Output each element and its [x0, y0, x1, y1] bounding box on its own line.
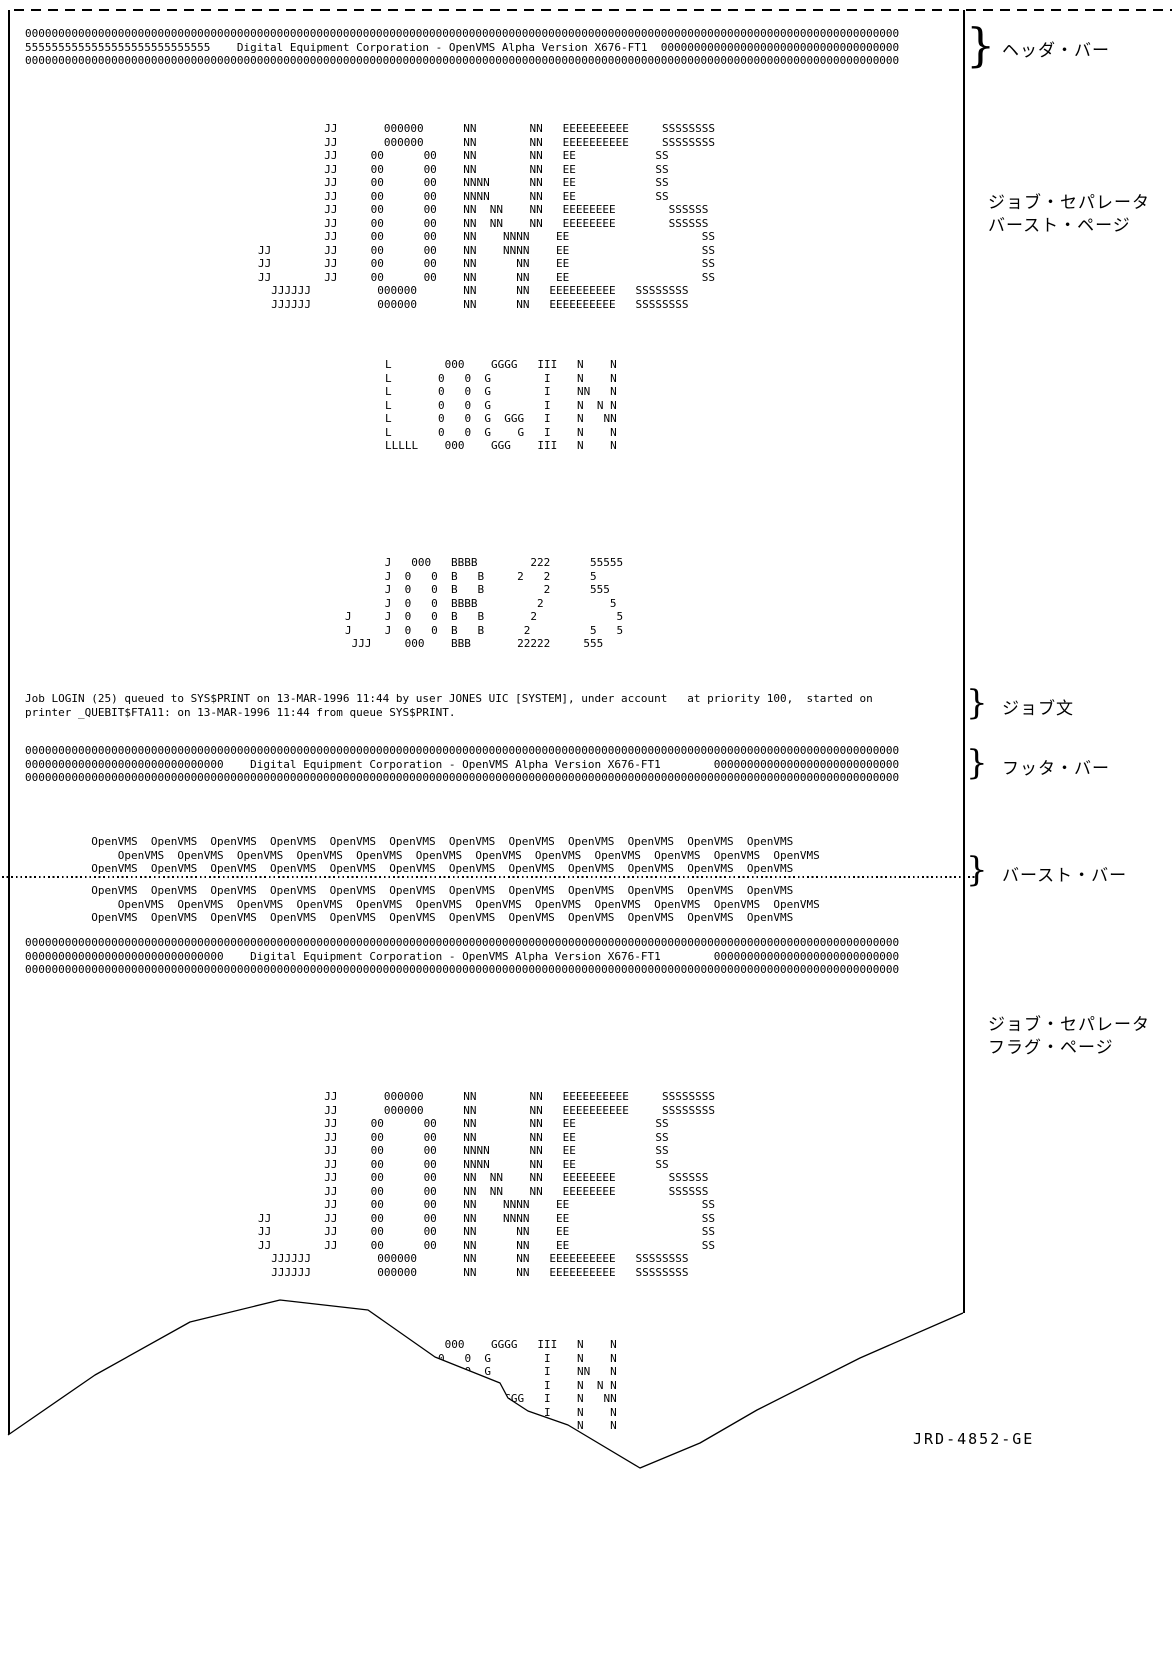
header-bar-brace-icon: }	[966, 22, 995, 68]
job-statement-brace-icon: }	[966, 686, 988, 720]
annotation-footer-bar: フッタ・バー	[1002, 754, 1110, 779]
openvms-rows-below-burst: OpenVMS OpenVMS OpenVMS OpenVMS OpenVMS …	[25, 884, 820, 925]
annotation-line: フラグ・ページ	[988, 1037, 1150, 1060]
header-bar-text-flag-page: 0000000000000000000000000000000000000000…	[25, 936, 899, 977]
figure-canvas: 0000000000000000000000000000000000000000…	[0, 0, 1175, 1657]
annotation-job-separator-burst-page: ジョブ・セパレータ バースト・ページ	[988, 192, 1150, 238]
burst-bar-brace-icon: }	[966, 853, 988, 887]
job-number-banner: J 000 BBBB 222 55555 J 0 0 B B 2 2 5 J 0…	[345, 556, 623, 651]
annotation-line: ジョブ・セパレータ	[988, 1014, 1150, 1037]
header-bar-text: 0000000000000000000000000000000000000000…	[25, 27, 899, 68]
annotation-line: バースト・ページ	[988, 215, 1150, 238]
annotation-burst-bar: バースト・バー	[1002, 861, 1127, 886]
jones-banner-burst-page: JJ 000000 NN NN EEEEEEEEEE SSSSSSSS JJ 0…	[258, 122, 715, 311]
login-banner-burst-page: L 000 GGGG III N N L 0 0 G I N N L 0 0 G…	[385, 358, 617, 453]
annotation-job-separator-flag-page: ジョブ・セパレータ フラグ・ページ	[988, 1014, 1150, 1060]
footer-bar-text: 0000000000000000000000000000000000000000…	[25, 744, 899, 785]
job-statement-text: Job LOGIN (25) queued to SYS$PRINT on 13…	[25, 692, 873, 719]
page-curl-fill	[8, 1300, 963, 1657]
footer-bar-brace-icon: }	[966, 746, 988, 780]
page-left-border	[8, 10, 10, 1435]
annotation-job-statement: ジョブ文	[1002, 694, 1074, 719]
burst-bar-dotted-line	[2, 876, 978, 878]
annotation-line: ジョブ・セパレータ	[988, 192, 1150, 215]
page-top-dashed-border	[14, 9, 1172, 11]
openvms-rows-above-burst: OpenVMS OpenVMS OpenVMS OpenVMS OpenVMS …	[25, 835, 820, 876]
annotation-header-bar: ヘッダ・バー	[1002, 36, 1110, 61]
figure-id-label: JRD-4852-GE	[913, 1430, 1034, 1448]
page-right-border	[963, 10, 965, 1313]
